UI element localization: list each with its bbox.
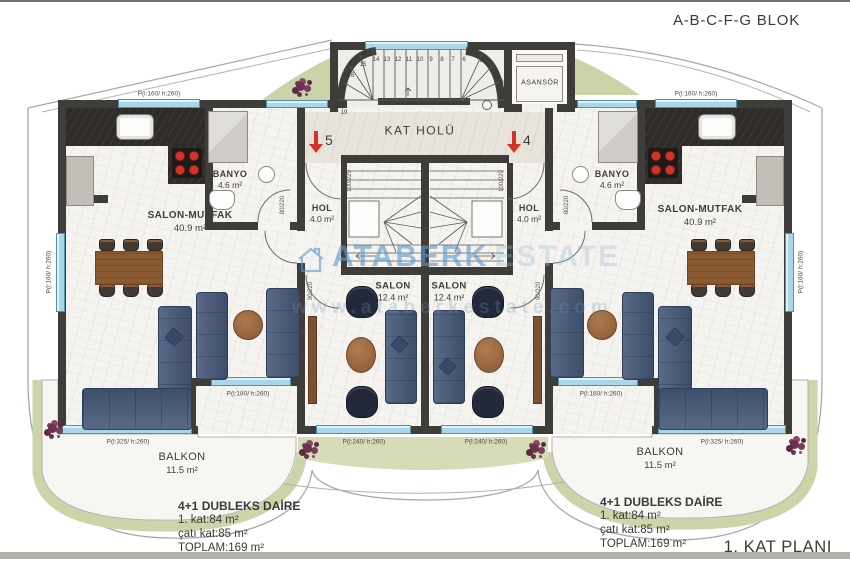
page-edge-bottom [0,552,850,559]
window [118,99,200,108]
apartment-summary-right: 4+1 DUBLEKS DAİRE 1. kat:84 m² çatı kat:… [600,495,722,551]
room-label-hol-left: HOL 4.0 m² [310,203,334,225]
sofa [385,310,417,404]
door-opening [545,231,553,263]
toilet [209,190,235,210]
room-area: 4.6 m² [595,180,630,191]
armchair [346,386,378,418]
door-opening [258,222,290,230]
room-name: SALON [375,280,410,292]
apartment-summary-left: 4+1 DUBLEKS DAİRE 1. kat:84 m² çatı kat:… [178,499,300,555]
dining-chair [691,284,707,297]
elevator-machine [516,54,563,62]
wall [421,155,513,163]
arrow-shaft [512,131,516,145]
room-name: HOL [517,203,541,214]
entrance-number: 4 [523,132,531,148]
corner-sofa [658,388,768,430]
door-opening [560,222,592,230]
wall [557,104,575,112]
summary-line: çatı kat:85 m² [178,527,300,541]
toilet [615,190,641,210]
plant-icon [530,444,539,453]
coffee-table [346,337,376,373]
room-area: 4.6 m² [213,180,248,191]
armchair [346,286,378,318]
armchair [472,386,504,418]
room-label-salon-mutfak-right: SALON-MUTFAK 40.9 m² [658,204,743,228]
room-area: 4.0 m² [517,214,541,225]
window [785,233,794,312]
room-label-hall: KAT HOLÜ [385,124,456,139]
wall [341,267,429,275]
stove-icon [648,148,678,178]
room-name: SALON-MUTFAK [148,210,233,223]
wall [504,42,575,50]
dining-chair [715,284,731,297]
tv-unit [533,316,542,404]
arrow-head [507,144,521,153]
entrance-number: 5 [325,132,333,148]
window-dim: P(l:160/ h:260) [798,251,805,294]
summary-title: 4+1 DUBLEKS DAİRE [600,495,722,509]
window-dim: P(l:240/ h:260) [465,439,508,446]
door-opening [297,231,305,263]
room-name: BANYO [595,169,630,180]
room-area: 11.5 m² [158,465,205,477]
page-edge-top [0,0,850,2]
tv-unit [308,316,317,404]
window-dim: P(l:160/ h:260) [46,251,53,294]
window-dim: P(l:325/ h:260) [107,439,150,446]
door-dim: 80/220 [564,196,570,214]
room-name: SALON-MUTFAK [658,204,743,217]
sofa [550,288,584,378]
wall [378,98,470,105]
plant-icon [790,440,799,449]
washbasin [258,166,275,183]
summary-line: çatı kat:85 m² [600,523,722,537]
room-name: BANYO [213,169,248,180]
plant-icon [48,424,57,433]
floor-plan-page: 14 13 12 11 10 9 8 7 6 15 16 17 18 19 5 … [0,0,850,566]
window-dim: P(l:180/ h:260) [227,391,270,398]
skylight-window [365,41,468,50]
plant-icon [303,444,312,453]
room-label-salon-mutfak-left: SALON-MUTFAK 40.9 m² [148,210,233,234]
coffee-table [587,310,617,340]
window-dim: P(l:180/ h:260) [580,391,623,398]
room-label-banyo-left: BANYO 4.6 m² [213,169,248,191]
door-dim: 90/220 [308,282,314,300]
armchair [472,286,504,318]
washbasin [572,166,589,183]
room-label-balkon-right: BALKON 11.5 m² [636,446,683,472]
kitchen-cabinet [66,156,94,206]
room-name: HOL [310,203,334,214]
window-dim: P(l:160/ h:260) [138,91,181,98]
sofa [196,292,228,380]
room-label-salon-left: SALON 12.4 m² [375,280,410,303]
wall [297,108,305,434]
room-name: BALKON [636,446,683,460]
room-area: 11.5 m² [636,460,683,472]
window [441,425,533,434]
room-area: 40.9 m² [148,222,233,234]
room-label-salon-right: SALON 12.4 m² [431,280,466,303]
wall [341,155,429,163]
dining-chair [147,284,163,297]
room-area: 40.9 m² [658,216,743,228]
room-label-elevator: ASANSÖR [521,80,559,89]
shower [598,111,638,163]
room-area: 12.4 m² [431,292,466,303]
coffee-table [474,337,504,373]
wall [421,155,429,434]
wall [637,108,645,230]
kitchen-sink [116,114,154,140]
window [316,425,411,434]
plant-icon [296,82,305,91]
dining-chair [99,284,115,297]
wall [330,42,338,112]
door-opening [509,155,545,163]
window-dim: P(l:325/ h:260) [701,439,744,446]
room-name: BALKON [158,451,205,465]
coffee-table [233,310,263,340]
room-label-hol-right: HOL 4.0 m² [517,203,541,225]
wall [507,163,513,267]
room-area: 12.4 m² [375,292,410,303]
room-label-banyo-right: BANYO 4.6 m² [595,169,630,191]
stove-icon [172,148,202,178]
block-title: A-B-C-F-G BLOK [673,12,800,29]
sofa [622,292,654,380]
sofa [266,288,300,378]
dining-chair [123,284,139,297]
shower [208,111,248,163]
wall [421,267,513,275]
wall [567,42,575,112]
summary-line: 1. kat:84 m² [600,509,722,523]
room-name: SALON [431,280,466,292]
dining-table [687,251,755,285]
door-dim: 100/220 [499,170,505,192]
kitchen-sink [698,114,736,140]
window [577,100,637,108]
summary-title: 4+1 DUBLEKS DAİRE [178,499,300,513]
summary-line: 1. kat:84 m² [178,513,300,527]
corner-sofa [82,388,192,430]
window [266,100,328,108]
room-label-balkon-left: BALKON 11.5 m² [158,451,205,477]
door-dim: 100/220 [347,170,353,192]
dining-chair [739,284,755,297]
window-dim: P(l:160/ h:260) [675,91,718,98]
room-area: 4.0 m² [310,214,334,225]
wall [504,104,522,112]
door-opening [305,155,341,163]
arrow-head [309,144,323,153]
kitchen-cabinet [756,156,784,206]
window [56,233,65,312]
dining-table [95,251,163,285]
door-dim: 90/220 [536,282,542,300]
door-dim: 80/220 [280,196,286,214]
sofa [433,310,465,404]
arrow-shaft [314,131,318,145]
wall [504,42,512,112]
window [655,99,737,108]
summary-line: TOPLAM:169 m² [600,537,722,551]
window-dim: P(l:240/ h:260) [343,439,386,446]
wall [545,108,553,434]
